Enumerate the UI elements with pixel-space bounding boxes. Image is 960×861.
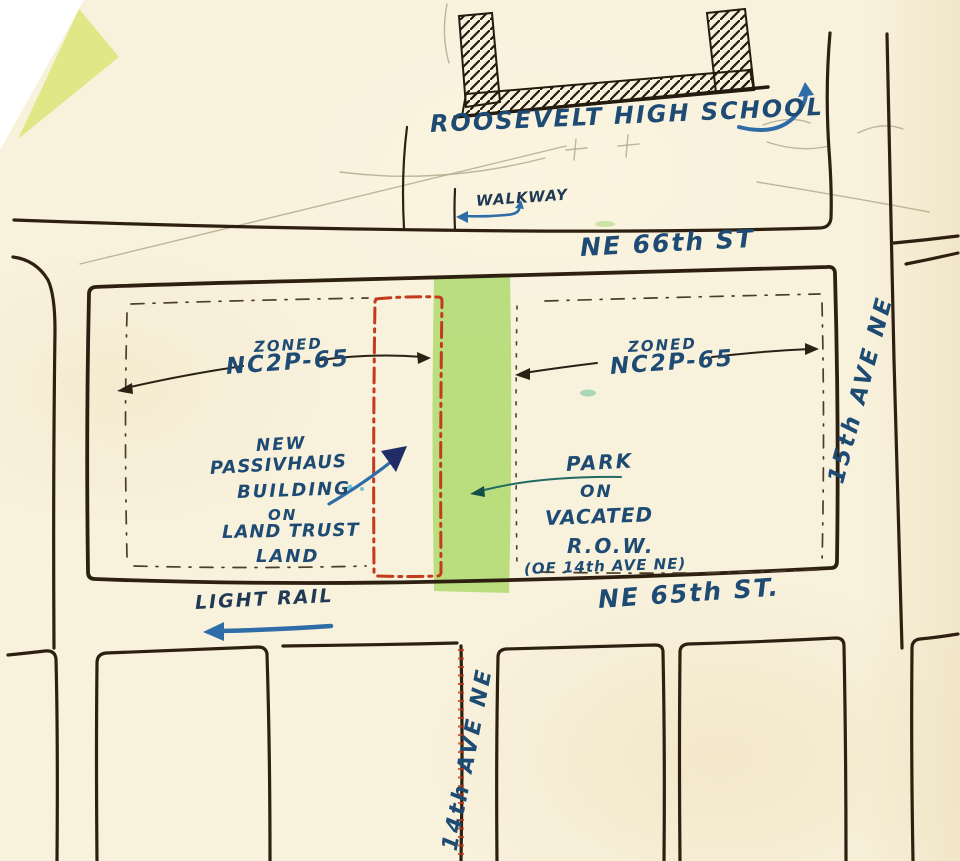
- walkway-left-edge: [403, 127, 407, 228]
- park-label-line1: PARK: [565, 448, 633, 475]
- park-label-line3: VACATED: [545, 502, 654, 530]
- light-rail-arrow: [220, 626, 331, 631]
- passivhaus-site-red-outline: [374, 297, 442, 577]
- ne-66th-bottom-east-segment: [906, 253, 958, 264]
- hand-drawn-site-map: ROOSEVELT HIGH SCHOOL WALKWAY NE 66th ST…: [0, 0, 960, 861]
- walkway-right-edge: [455, 189, 456, 230]
- park-label-line2: ON: [580, 482, 613, 502]
- ne-65th-bottom-segment-d: [497, 645, 665, 861]
- ne-65th-bottom-segment-b: [97, 647, 271, 861]
- ne-66th-top-east-segment: [894, 236, 958, 243]
- park-label-line4: R.O.W.: [567, 534, 654, 558]
- ne-65th-bottom-segment-f: [912, 634, 958, 861]
- ne-66th-top-and-15th-ave-left-line: [14, 33, 831, 231]
- passivhaus-label-line6: LAND: [256, 546, 319, 567]
- ne-65th-bottom-segment-c: [283, 643, 457, 646]
- ne-65th-bottom-segment-a: [8, 651, 57, 861]
- passivhaus-label-line5: LAND TRUST: [222, 520, 360, 543]
- park-green-strip: [433, 274, 512, 593]
- ne-65th-bottom-segment-e: [680, 638, 847, 861]
- passivhaus-label-line3: BUILDING: [237, 478, 352, 503]
- west-street-left-line: [13, 257, 55, 648]
